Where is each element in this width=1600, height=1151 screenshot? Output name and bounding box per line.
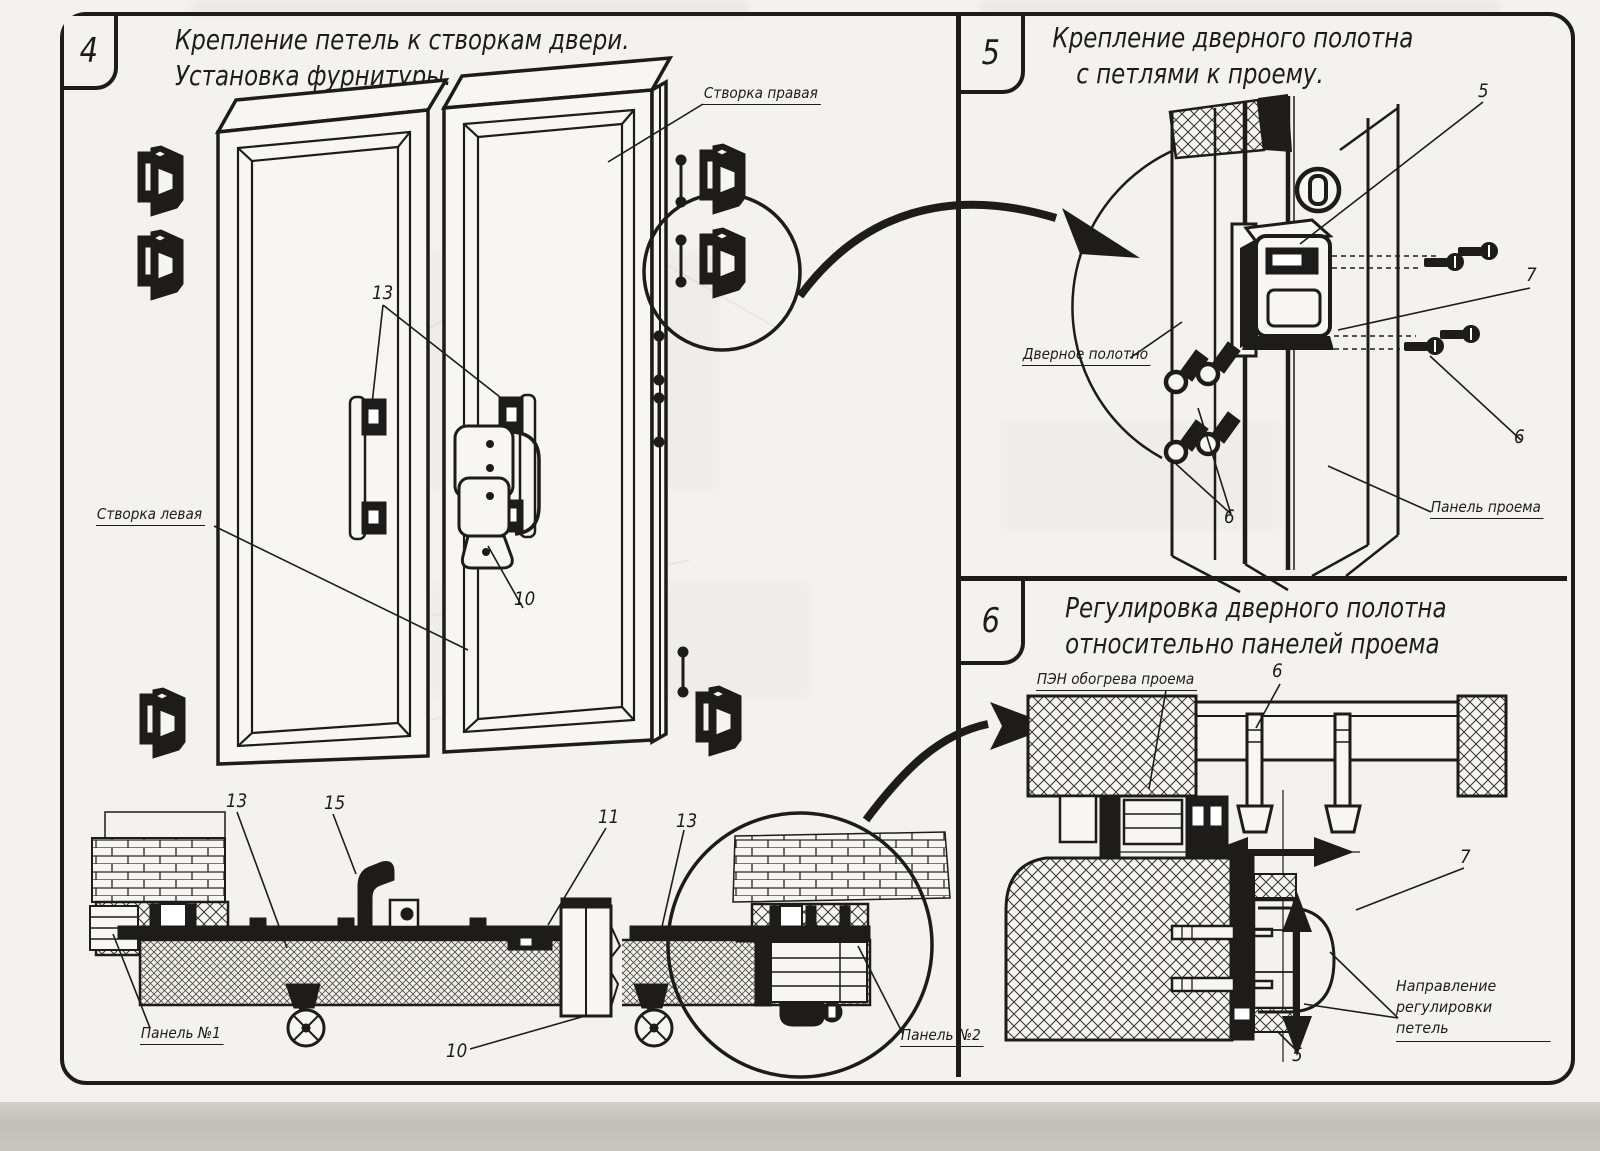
callout-bolts-6: 6	[1272, 660, 1283, 682]
arrow-to-panel6	[866, 702, 1054, 820]
label-left-leaf: Створка левая	[96, 505, 205, 526]
callout-screws-right-6: 6	[1514, 426, 1525, 448]
callout-latch: 10	[514, 588, 535, 610]
handle	[358, 861, 394, 930]
door-block-section	[1006, 858, 1232, 1040]
callout-section-bracket: 11	[598, 806, 619, 828]
brick-wall-left	[92, 838, 225, 902]
callout-section-support: 10	[446, 1040, 467, 1062]
callout-hinge-plates: 13	[372, 282, 393, 304]
hinge-assembly	[1232, 220, 1334, 356]
scan-edge-strip	[0, 1102, 1600, 1151]
drawing-linework	[0, 0, 1600, 1151]
callout-hinge-5: 5	[1478, 80, 1489, 102]
callout-screws-left-6: 6	[1224, 506, 1235, 528]
label-door-leaf: Дверное полотно	[1022, 345, 1151, 366]
panel4-drawing	[90, 58, 1140, 1077]
label-adjust-direction-line2: петель	[1396, 1018, 1551, 1039]
callout-hinge-5-p6: 5	[1292, 1044, 1303, 1066]
label-right-leaf: Створка правая	[703, 84, 821, 105]
callout-plate-7-p6: 7	[1460, 846, 1471, 868]
screws-left	[1166, 342, 1240, 462]
callout-section-right: 13	[676, 810, 697, 832]
label-opening-panel: Панель проема	[1430, 498, 1544, 519]
callout-handle: 15	[324, 792, 345, 814]
callout-section-left: 13	[226, 790, 247, 812]
label-opening-heater: ПЭН обогрева проема	[1036, 670, 1197, 691]
label-adjust-direction: Направление регулировки петель	[1396, 976, 1551, 1042]
label-panel-1: Панель №1	[140, 1024, 223, 1045]
callout-plate-7: 7	[1526, 264, 1537, 286]
scanned-assembly-sheet: 4 5 6 Крепление петель к створкам двери.…	[0, 0, 1600, 1151]
label-adjust-direction-line1: Направление регулировки	[1396, 976, 1551, 1018]
brick-wall-right	[733, 832, 950, 902]
label-panel-2: Панель №2	[900, 1026, 983, 1047]
arrow-to-panel5	[800, 205, 1140, 296]
support-post	[561, 898, 611, 1016]
heater-block	[1028, 696, 1196, 796]
